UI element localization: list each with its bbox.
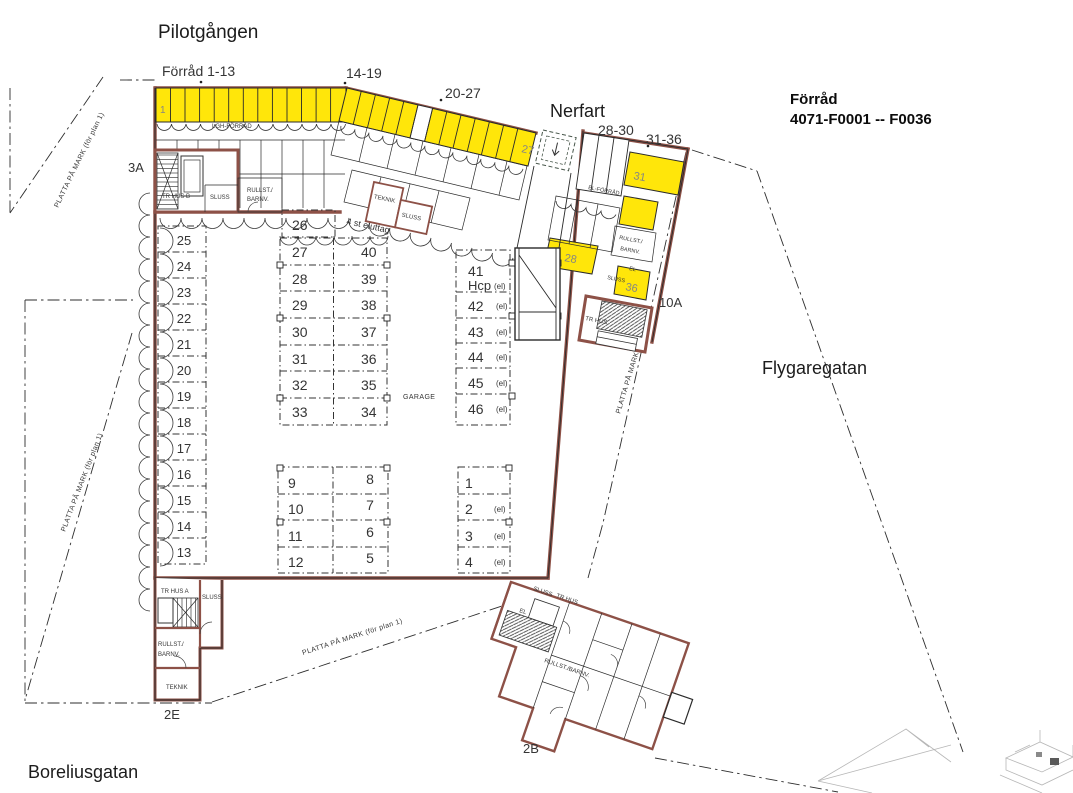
strip-14-27: [339, 88, 536, 166]
street-boreliusgatan: Boreliusgatan: [28, 762, 138, 782]
boundary-lines: [10, 77, 963, 792]
stall-number: 26: [292, 217, 308, 233]
entrance-10a: 10A: [659, 295, 682, 310]
entrance-2b: 2B: [523, 741, 539, 756]
stall-number: 23: [177, 285, 191, 300]
parking-stalls: 25 24 23 22 21 20 19 18 17 16 15 14 13 2…: [158, 210, 561, 573]
rullst-label: RULLST./: [619, 235, 644, 245]
stall-el-mark: (el): [496, 353, 508, 362]
stall-number: 27: [292, 244, 308, 260]
unit-31-cell: [624, 152, 684, 195]
stall-number: 20: [177, 363, 191, 378]
stall-number: 30: [292, 324, 308, 340]
stall-number: 43: [468, 324, 484, 340]
barnv-label: BARNV.: [620, 246, 641, 256]
stall-block-right-column: 41 Hcp (el) 42 (el) 43 (el) 44 (el) 45 (…: [456, 250, 510, 425]
stall-number: 34: [361, 404, 377, 420]
sluss-label: SLUSS: [210, 195, 230, 201]
unit-32-35-cells: [619, 196, 658, 230]
stall-number: 2: [465, 501, 473, 517]
stall-number: 21: [177, 337, 191, 352]
stall-number: 13: [177, 545, 191, 560]
header-forrad: Förråd: [790, 91, 838, 108]
unit-36-label: 36: [624, 281, 638, 295]
entrance-2e: 2E: [164, 707, 180, 722]
unit-31-label: 31: [632, 170, 646, 184]
stall-number: 40: [361, 244, 377, 260]
entrance-3a: 3A: [128, 160, 144, 175]
stall-number: 29: [292, 297, 308, 313]
stall-number: 17: [177, 441, 191, 456]
el-label: EL: [629, 266, 637, 273]
rullst-label: RULLST./: [247, 188, 273, 194]
stall-number: 5: [366, 550, 374, 566]
stall-number: 19: [177, 389, 191, 404]
stall-number: 12: [288, 554, 304, 570]
stall-number: 37: [361, 324, 377, 340]
stall-el-mark: (el): [494, 532, 506, 541]
rullst-label: RULLST./: [158, 642, 184, 648]
ramp-entry-shaft: [535, 130, 576, 171]
stall-number: 6: [366, 524, 374, 540]
sluss-label: SLUSS: [202, 595, 222, 601]
stall-hcp-label: Hcp: [468, 278, 491, 293]
strip-1-13: [156, 88, 346, 122]
stall-number: 16: [177, 467, 191, 482]
cage-fronts-left-column: [160, 228, 173, 566]
teknik-label: TEKNIK: [166, 685, 188, 691]
stall-el-mark: (el): [494, 558, 506, 567]
stall-block-lower-middle: 9 10 11 12 8 7 6 5: [278, 467, 388, 573]
unit-28-label: 28: [563, 252, 577, 266]
range-14-19: 14-19: [346, 65, 382, 81]
stall-number: 10: [288, 501, 304, 517]
stall-number: 36: [361, 351, 377, 367]
barnv-label: BARNV.: [158, 652, 180, 658]
stall-number: 18: [177, 415, 191, 430]
stall-number: 31: [292, 351, 308, 367]
street-nerfart: Nerfart: [550, 101, 605, 121]
stall-el-mark: (el): [496, 302, 508, 311]
stall-number: 1: [465, 475, 473, 491]
building-2b: SLUSS TR HUS EL RULLST./BARNV.: [463, 582, 709, 788]
stall-number: 25: [177, 233, 191, 248]
strip-28-30: [576, 133, 629, 196]
stall-number: 3: [465, 528, 473, 544]
garage-label: GARAGE: [403, 394, 435, 401]
range-28-30: 28-30: [598, 122, 634, 138]
ground-note-bottom: PLATTA PÅ MARK (för plan 1): [301, 616, 404, 657]
ground-note-left: PLATTA PÅ MARK (för plan 1): [58, 431, 104, 532]
stall-number: 32: [292, 377, 308, 393]
tr-hus-a-label: TR HUS A: [161, 589, 189, 595]
stall-number: 45: [468, 375, 484, 391]
unit-1-label: 1: [160, 105, 166, 116]
cloud-left: [139, 193, 150, 611]
stall-number: 46: [468, 401, 484, 417]
stall-number: 22: [177, 311, 191, 326]
range-1-13: Förråd 1-13: [162, 63, 235, 79]
stall-el-mark: (el): [494, 505, 506, 514]
stall-block-middle: 26 27 28 29 30 31 32 33 40 39 38 37 36 3…: [280, 210, 387, 425]
stall-number: 44: [468, 349, 484, 365]
axon-sketch: [818, 729, 1073, 793]
street-flygaregatan: Flygaregatan: [762, 358, 867, 378]
lgh-forrad-label: LGH-FÖRRÅD: [212, 123, 252, 130]
tr-hus-b-label: TR HUS B: [162, 194, 190, 200]
stall-number: 35: [361, 377, 377, 393]
ground-note-topleft: PLATTA PÅ MARK (för plan 1): [52, 110, 106, 208]
stall-number: 41: [468, 263, 484, 279]
stall-number: 38: [361, 297, 377, 313]
stall-el-mark: (el): [496, 328, 508, 337]
stall-number: 14: [177, 519, 191, 534]
stall-number: 24: [177, 259, 191, 274]
stall-number: 4: [465, 554, 473, 570]
stall-el-mark: (el): [496, 379, 508, 388]
floor-plan-svg: PLATTA PÅ MARK (för plan 1) PLATTA PÅ MA…: [0, 0, 1073, 793]
barnv-label: BARNV.: [247, 197, 269, 203]
stall-number: 33: [292, 404, 308, 420]
stairhouse-top-left: TR HUS B SLUSS RULLST./ BARNV.: [155, 150, 282, 212]
stall-number: 7: [366, 497, 374, 513]
stall-el-mark: (el): [494, 282, 506, 291]
street-pilotgangen: Pilotgången: [158, 22, 258, 43]
stall-block-lower-right: 1 2 (el) 3 (el) 4 (el): [458, 467, 510, 573]
stall-number: 42: [468, 298, 484, 314]
range-31-36: 31-36: [646, 131, 682, 147]
ramp-body: [515, 248, 560, 340]
stall-number: 9: [288, 475, 296, 491]
stall-number: 8: [366, 471, 374, 487]
stall-number: 28: [292, 271, 308, 287]
stall-number: 11: [288, 528, 303, 544]
stall-el-mark: (el): [496, 405, 508, 414]
floor-plan-drawing: PLATTA PÅ MARK (för plan 1) PLATTA PÅ MA…: [0, 0, 1073, 793]
range-20-27: 20-27: [445, 85, 481, 101]
stairhouse-bottom-left-2e: TR HUS A SLUSS RULLST./ BARNV. TEKNIK: [155, 578, 222, 700]
header-range: 4071-F0001 -- F0036: [790, 111, 932, 128]
stall-number: 15: [177, 493, 191, 508]
stall-number: 39: [361, 271, 377, 287]
